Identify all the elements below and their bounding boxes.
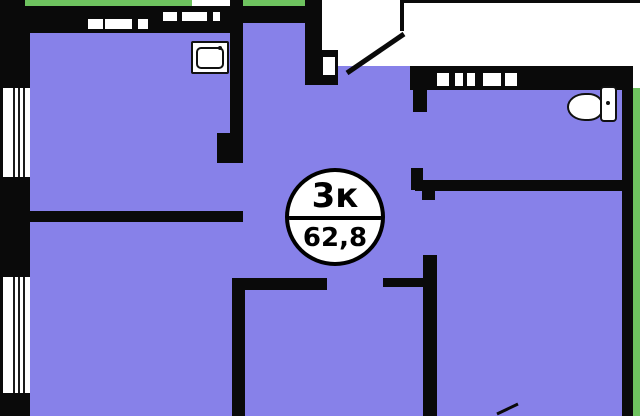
vent (88, 19, 103, 29)
vent (213, 12, 220, 21)
toilet-icon (567, 93, 603, 121)
wall-kitchen-hall (230, 22, 243, 163)
entrance-door-frame (323, 57, 335, 75)
landing-outline-top (402, 0, 640, 3)
badge-room-count: 3к (289, 179, 381, 213)
badge-total-area: 62,8 (289, 225, 381, 251)
balcony-strip-top-right (243, 0, 305, 6)
badge-divider (289, 216, 381, 220)
vent (467, 73, 475, 86)
vent (483, 73, 501, 86)
vent (437, 73, 449, 86)
balcony-strip-right (633, 88, 640, 416)
exterior-area (320, 22, 622, 66)
wall-bedroom-right-left (423, 255, 437, 416)
toilet-tank-icon (600, 86, 617, 122)
wall (230, 0, 243, 6)
wall-bedroom-mid-top (232, 278, 327, 290)
wall-exterior-top (0, 3, 322, 23)
window-icon (3, 277, 30, 393)
kitchen-sink-icon (191, 41, 229, 74)
wall-bedroom-right-stub (383, 278, 425, 287)
room-count-badge: 3к 62,8 (285, 168, 385, 266)
wall-bathroom-bottom-stub (422, 188, 435, 200)
balcony-strip-top-left (25, 0, 192, 6)
landing-outline-vertical (400, 0, 404, 31)
vent (455, 73, 463, 86)
wall-bathroom-left-upper (413, 90, 427, 112)
wall-corridor-right (305, 0, 322, 85)
window-icon (3, 88, 30, 177)
vent (105, 19, 132, 29)
wall-kitchen-hall-foot (217, 133, 230, 163)
wall-bathroom-bottom (415, 180, 622, 191)
wall-kitchen-living (28, 211, 243, 222)
vent (138, 19, 148, 29)
floor-plan[interactable]: кухня 8,9 9,5 прихожая санузел 4,7 жилая… (0, 0, 640, 416)
wall-exterior-right (622, 66, 633, 416)
wall-bedroom-mid-left (232, 278, 245, 416)
balcony-window-notch (192, 0, 230, 6)
vent (163, 12, 177, 21)
vent (505, 73, 517, 86)
vent (182, 12, 207, 21)
